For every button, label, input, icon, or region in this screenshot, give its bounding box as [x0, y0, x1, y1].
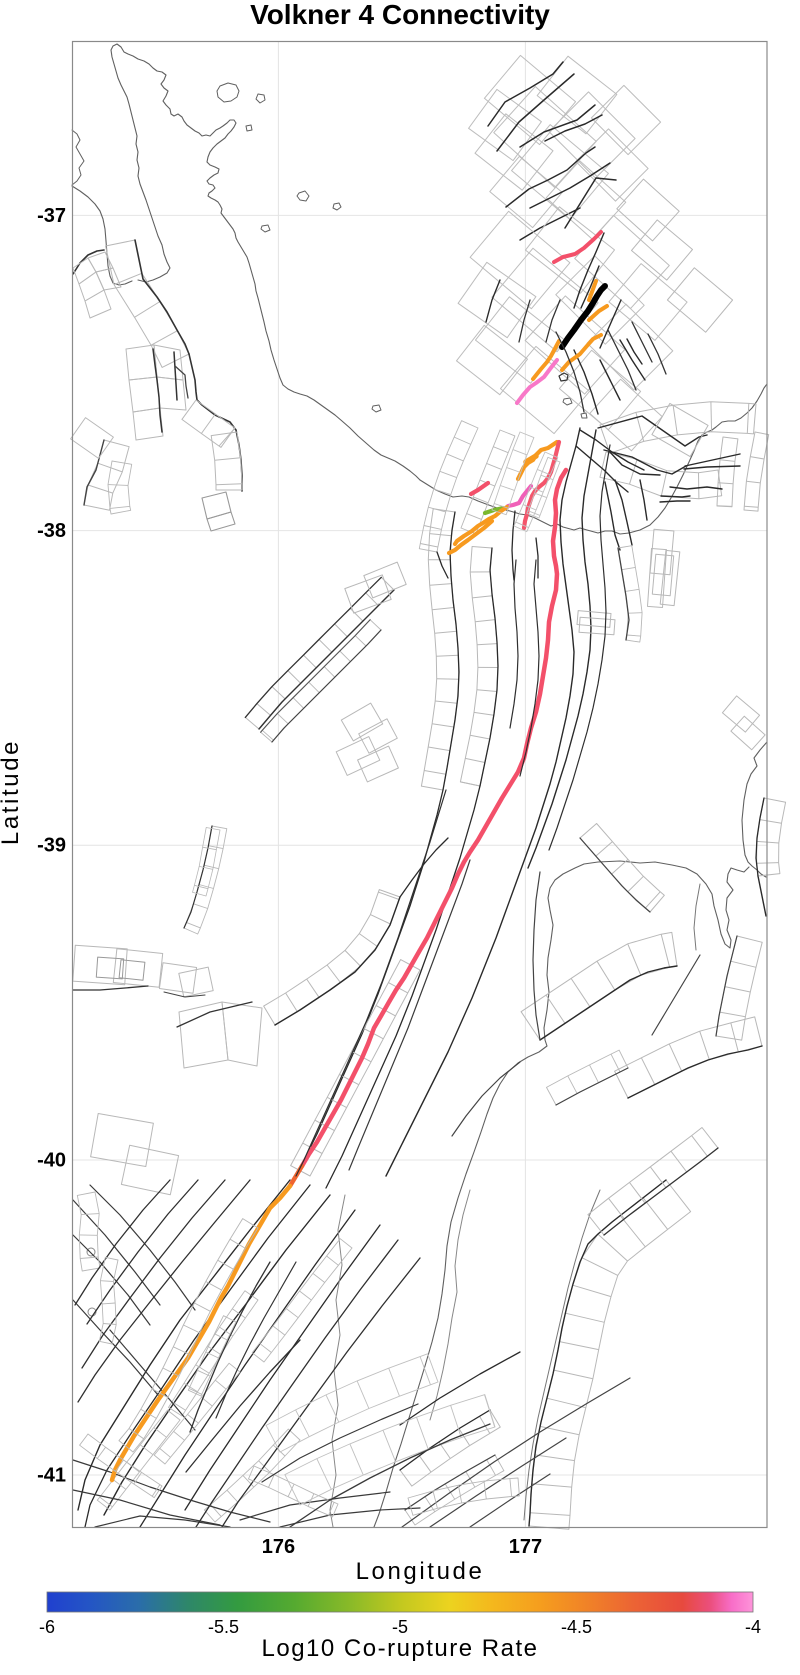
svg-text:-37: -37 [37, 205, 66, 227]
svg-text:-6: -6 [39, 1617, 55, 1637]
svg-text:176: 176 [262, 1536, 295, 1558]
svg-text:-4: -4 [745, 1617, 761, 1637]
svg-text:-41: -41 [37, 1465, 66, 1487]
svg-text:-5.5: -5.5 [208, 1617, 239, 1637]
svg-text:-38: -38 [37, 520, 66, 542]
svg-text:177: 177 [509, 1536, 542, 1558]
svg-text:Log10 Co-rupture Rate: Log10 Co-rupture Rate [262, 1635, 539, 1662]
svg-text:-40: -40 [37, 1150, 66, 1172]
svg-text:Volkner 4 Connectivity: Volkner 4 Connectivity [250, 0, 550, 30]
svg-text:Latitude: Latitude [0, 739, 24, 845]
svg-text:Longitude: Longitude [356, 1558, 485, 1585]
svg-text:-4.5: -4.5 [561, 1617, 592, 1637]
svg-text:-5: -5 [392, 1617, 408, 1637]
svg-text:-39: -39 [37, 835, 66, 857]
